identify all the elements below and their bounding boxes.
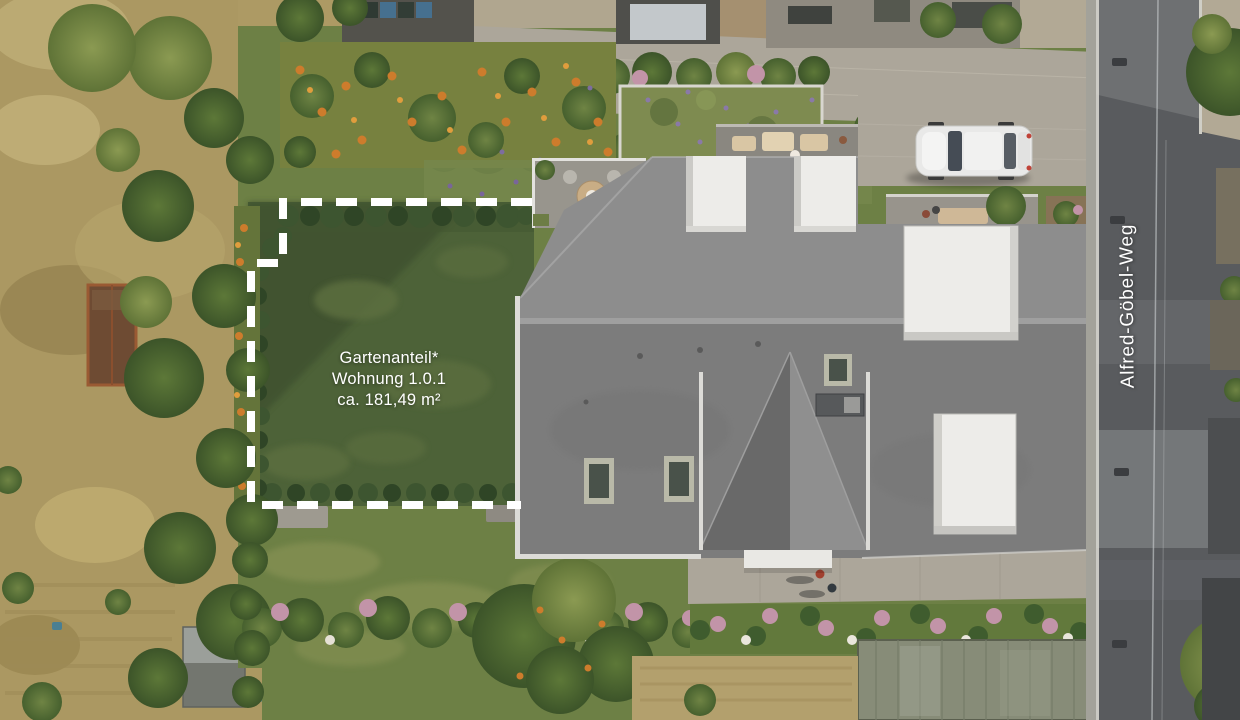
blue-barrel	[52, 622, 62, 630]
neighbor-buildings	[616, 0, 1098, 48]
garden-lawn-parcel	[248, 202, 534, 506]
entrance-canopy	[744, 550, 832, 573]
white-car	[906, 122, 1032, 187]
bottom-eave	[515, 554, 701, 559]
greenhouse	[858, 640, 1090, 720]
gutter	[1086, 0, 1096, 720]
curb	[1096, 0, 1099, 720]
roof-dormer-2	[794, 156, 856, 232]
top-dirt	[470, 0, 620, 28]
dirt-plot	[632, 656, 858, 720]
person	[922, 210, 930, 218]
roof-dormer-3	[934, 414, 1016, 534]
chimney	[816, 394, 864, 416]
flower-meadow	[280, 42, 616, 168]
roof-dormer-1	[686, 156, 746, 232]
roof-box-large	[904, 226, 1018, 340]
person	[839, 136, 847, 144]
aerial-photo	[0, 0, 1240, 720]
left-eave	[515, 296, 520, 558]
aerial-scene: Gartenanteil* Wohnung 1.0.1 ca. 181,49 m…	[0, 0, 1240, 720]
person	[932, 206, 940, 214]
street-road	[1086, 0, 1240, 720]
